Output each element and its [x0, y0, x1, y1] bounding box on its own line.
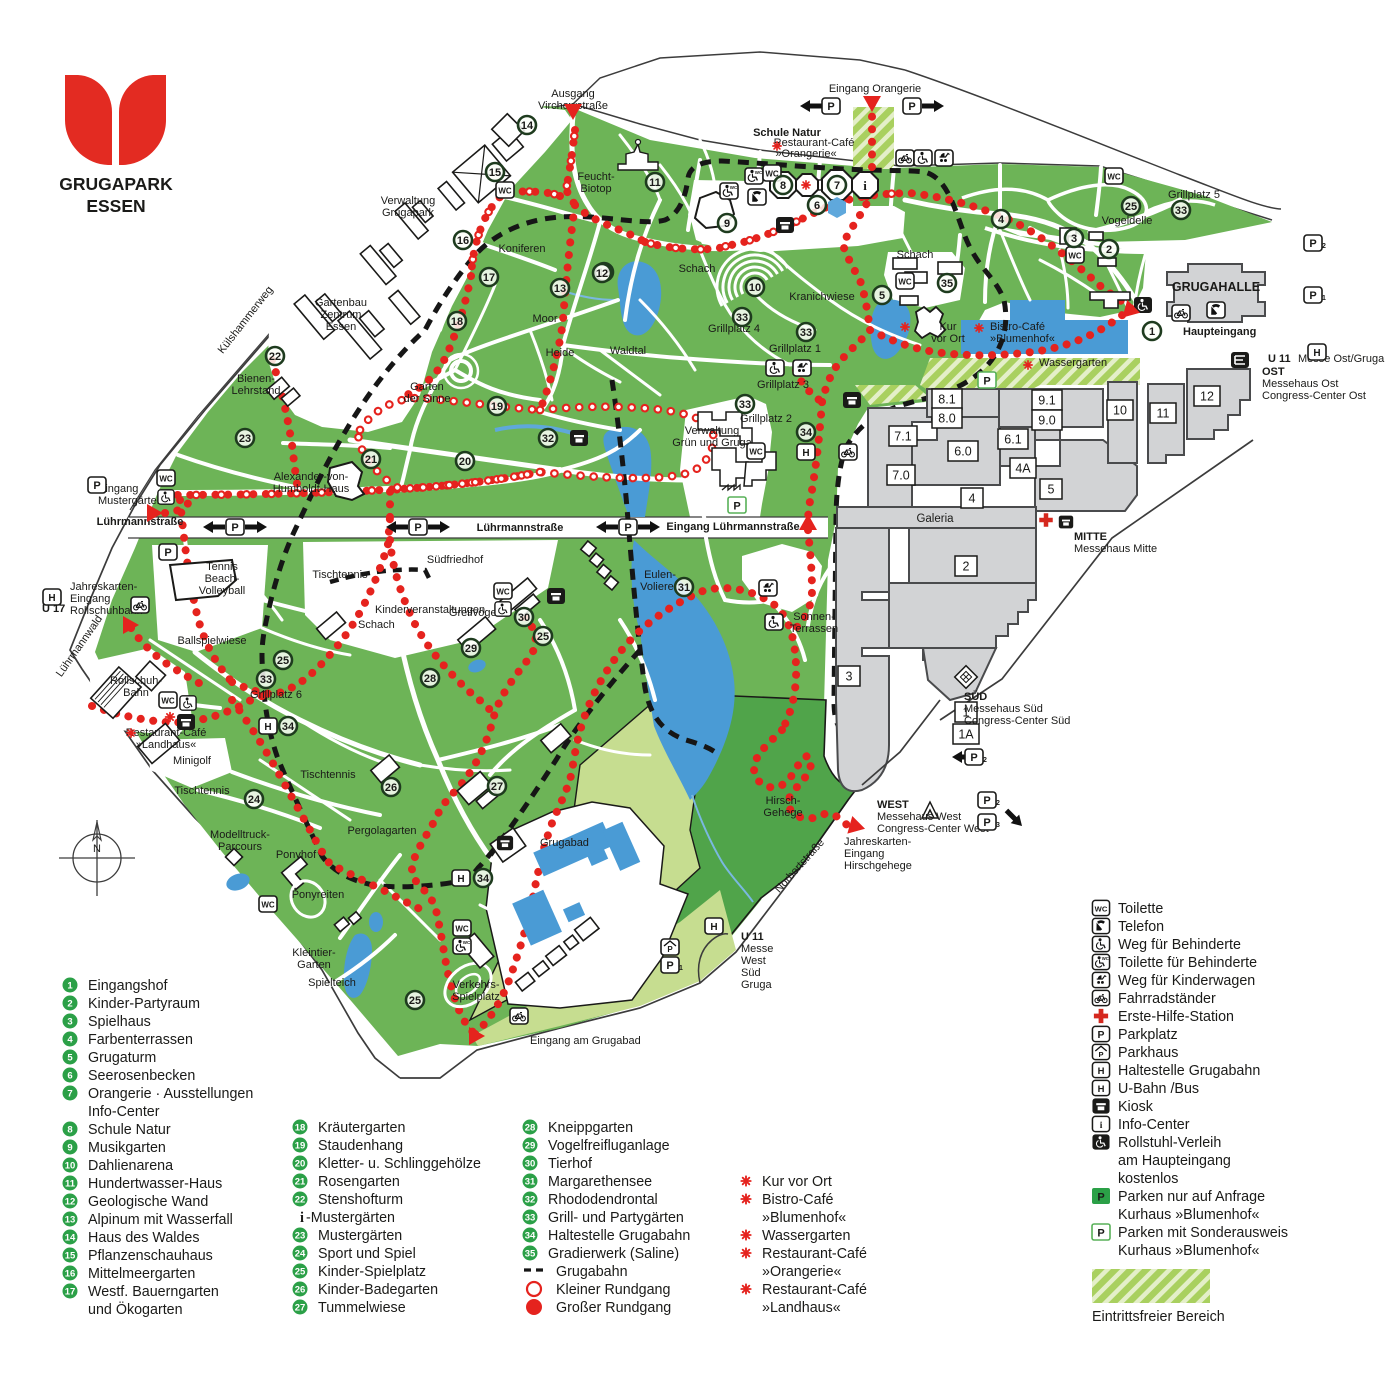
svg-text:Lührmannstraße: Lührmannstraße [97, 516, 184, 528]
svg-text:34: 34 [282, 721, 295, 733]
svg-text:Eingang: Eingang [70, 593, 110, 605]
svg-text:34: 34 [525, 1231, 536, 1242]
svg-text:U-Bahn /Bus: U-Bahn /Bus [1118, 1081, 1199, 1097]
svg-text:35: 35 [941, 278, 953, 290]
svg-text:17: 17 [483, 272, 495, 284]
svg-text:Wassergarten: Wassergarten [1039, 357, 1107, 369]
svg-text:-Mustergärten: -Mustergärten [306, 1210, 395, 1226]
svg-text:8.0: 8.0 [938, 412, 955, 426]
svg-text:Hundertwasser-Haus: Hundertwasser-Haus [88, 1176, 222, 1192]
svg-text:23: 23 [295, 1231, 306, 1242]
svg-text:Bienen-: Bienen- [237, 373, 275, 385]
svg-text:4A: 4A [1015, 462, 1031, 476]
svg-text:Congress-Center Süd: Congress-Center Süd [964, 715, 1070, 727]
svg-text:12: 12 [596, 268, 608, 280]
svg-text:8.1: 8.1 [938, 393, 955, 407]
svg-text:Schach: Schach [679, 263, 716, 275]
svg-text:Mustergärten: Mustergärten [98, 495, 163, 507]
svg-text:Parcours: Parcours [218, 841, 263, 853]
svg-text:MITTE: MITTE [1074, 531, 1107, 543]
svg-text:Toilette für Behinderte: Toilette für Behinderte [1118, 955, 1257, 971]
svg-text:GRUGAPARK: GRUGAPARK [59, 174, 173, 194]
svg-text:11: 11 [1157, 407, 1170, 421]
svg-text:9: 9 [724, 218, 730, 230]
svg-text:2: 2 [963, 560, 970, 574]
svg-text:Zentrum: Zentrum [321, 309, 362, 321]
svg-text:25: 25 [1125, 201, 1137, 213]
svg-text:Beach-: Beach- [205, 573, 240, 585]
svg-text:N: N [93, 843, 101, 855]
svg-text:Eingang: Eingang [844, 848, 884, 860]
svg-text:WEST: WEST [877, 799, 909, 811]
svg-text:6.0: 6.0 [954, 445, 971, 459]
svg-text:25: 25 [409, 995, 421, 1007]
svg-text:Parkhaus: Parkhaus [1118, 1045, 1178, 1061]
svg-text:Weg für Behinderte: Weg für Behinderte [1118, 937, 1241, 953]
svg-text:Seerosenbecken: Seerosenbecken [88, 1068, 195, 1084]
svg-text:Pergolagarten: Pergolagarten [347, 825, 416, 837]
svg-text:11: 11 [649, 177, 661, 189]
svg-text:Kräutergarten: Kräutergarten [318, 1120, 405, 1136]
svg-text:Heide: Heide [546, 347, 575, 359]
svg-text:9.0: 9.0 [1038, 414, 1055, 428]
svg-text:Mittelmeergarten: Mittelmeergarten [88, 1266, 195, 1282]
svg-text:Weg für Kinderwagen: Weg für Kinderwagen [1118, 973, 1255, 989]
svg-text:Toilette: Toilette [1118, 901, 1163, 917]
svg-text:14: 14 [521, 120, 534, 132]
svg-text:Congress-Center West: Congress-Center West [877, 823, 989, 835]
svg-text:Lehrstand: Lehrstand [232, 385, 281, 397]
svg-text:32: 32 [542, 433, 554, 445]
svg-text:Verwaltung: Verwaltung [685, 425, 739, 437]
svg-text:Ponyhof: Ponyhof [276, 849, 317, 861]
svg-text:»Orangerie«: »Orangerie« [762, 1264, 842, 1280]
svg-text:U 11: U 11 [1268, 353, 1291, 365]
svg-text:Messehaus West: Messehaus West [877, 811, 961, 823]
svg-text:Ballspielwiese: Ballspielwiese [177, 635, 246, 647]
svg-text:Congress-Center Ost: Congress-Center Ost [1262, 390, 1366, 402]
svg-text:1A: 1A [958, 728, 974, 742]
svg-text:Kurhaus »Blumenhof«: Kurhaus »Blumenhof« [1118, 1243, 1260, 1259]
svg-text:Parkplatz: Parkplatz [1118, 1027, 1178, 1043]
svg-text:Tummelwiese: Tummelwiese [318, 1300, 406, 1316]
svg-text:Haus des Waldes: Haus des Waldes [88, 1230, 200, 1246]
svg-text:3: 3 [846, 670, 853, 684]
svg-text:Vogelfreifluganlage: Vogelfreifluganlage [548, 1138, 670, 1154]
svg-text:Grillplatz 2: Grillplatz 2 [740, 413, 792, 425]
svg-text:35: 35 [525, 1249, 536, 1260]
svg-text:Messehaus Ost: Messehaus Ost [1262, 378, 1338, 390]
svg-text:Garten: Garten [410, 381, 444, 393]
svg-text:Verkehrs-: Verkehrs- [452, 979, 499, 991]
svg-text:20: 20 [459, 456, 471, 468]
svg-text:23: 23 [239, 433, 251, 445]
svg-text:Grill- und Partygärten: Grill- und Partygärten [548, 1210, 684, 1226]
svg-text:U 11: U 11 [741, 931, 764, 943]
svg-text:Ausgang: Ausgang [551, 88, 594, 100]
svg-text:22: 22 [295, 1195, 306, 1206]
svg-text:Grillplatz 4: Grillplatz 4 [708, 323, 760, 335]
svg-text:Tischtennis: Tischtennis [312, 569, 368, 581]
svg-text:Külshammerweg: Külshammerweg [216, 284, 276, 356]
svg-text:34: 34 [477, 873, 490, 885]
svg-text:33: 33 [260, 674, 272, 686]
svg-text:Rhododendrontal: Rhododendrontal [548, 1192, 658, 1208]
svg-text:i: i [863, 178, 867, 193]
svg-text:Feucht-: Feucht- [577, 171, 615, 183]
svg-text:P: P [1097, 1192, 1104, 1204]
svg-text:»Landhaus«: »Landhaus« [762, 1300, 841, 1316]
svg-text:2: 2 [1322, 243, 1326, 250]
svg-text:27: 27 [491, 781, 503, 793]
svg-text:33: 33 [739, 399, 751, 411]
svg-text:Eintrittsfreier Bereich: Eintrittsfreier Bereich [1092, 1309, 1225, 1325]
svg-text:Musikgarten: Musikgarten [88, 1140, 166, 1156]
svg-text:24: 24 [295, 1249, 306, 1260]
svg-text:Rollschuh-: Rollschuh- [110, 675, 162, 687]
svg-text:Kleiner Rundgang: Kleiner Rundgang [556, 1282, 671, 1298]
svg-text:Spielteich: Spielteich [308, 977, 356, 989]
svg-text:Rollstuhl-Verleih: Rollstuhl-Verleih [1118, 1135, 1221, 1151]
svg-text:Kurhaus »Blumenhof«: Kurhaus »Blumenhof« [1118, 1207, 1260, 1223]
svg-text:9: 9 [67, 1143, 72, 1154]
svg-text:Spielhaus: Spielhaus [88, 1014, 151, 1030]
svg-text:Grün und Gruga: Grün und Gruga [672, 437, 752, 449]
svg-text:Telefon: Telefon [1118, 919, 1164, 935]
svg-text:Pflanzenschauhaus: Pflanzenschauhaus [88, 1248, 213, 1264]
svg-text:19: 19 [491, 401, 503, 413]
svg-text:33: 33 [800, 327, 812, 339]
svg-text:17: 17 [65, 1287, 76, 1298]
svg-text:Verwaltung: Verwaltung [381, 195, 435, 207]
svg-text:Südfriedhof: Südfriedhof [427, 554, 484, 566]
svg-text:Schule Natur: Schule Natur [88, 1122, 171, 1138]
svg-text:der Sinne: der Sinne [403, 393, 450, 405]
svg-text:Grugapark: Grugapark [382, 207, 434, 219]
svg-text:Lührmannstraße: Lührmannstraße [477, 522, 564, 534]
svg-text:Galeria: Galeria [916, 513, 954, 525]
svg-text:Volleyball: Volleyball [199, 585, 245, 597]
svg-text:21: 21 [365, 454, 377, 466]
svg-text:1: 1 [67, 981, 73, 992]
svg-text:Schach: Schach [897, 249, 934, 261]
svg-text:Stenshofturm: Stenshofturm [318, 1192, 403, 1208]
svg-text:Fahrradständer: Fahrradständer [1118, 991, 1216, 1007]
svg-text:Grugaturm: Grugaturm [88, 1050, 156, 1066]
svg-text:kostenlos: kostenlos [1118, 1171, 1178, 1187]
svg-text:Vogeldelle: Vogeldelle [1102, 215, 1153, 227]
svg-text:Bahn: Bahn [123, 687, 149, 699]
svg-text:Eingang Lührmannstraße: Eingang Lührmannstraße [666, 521, 799, 533]
svg-text:12: 12 [1200, 390, 1214, 404]
svg-text:P: P [733, 501, 740, 513]
svg-text:»Orangerie«: »Orangerie« [775, 148, 836, 160]
svg-text:Bistro-Café: Bistro-Café [990, 321, 1045, 333]
svg-text:Haltestelle Grugabahn: Haltestelle Grugabahn [548, 1228, 690, 1244]
svg-text:14: 14 [65, 1233, 76, 1244]
svg-text:vor Ort: vor Ort [931, 333, 965, 345]
svg-text:Biotop: Biotop [580, 183, 611, 195]
svg-text:10: 10 [749, 282, 761, 294]
svg-text:16: 16 [457, 235, 469, 247]
svg-text:Kiosk: Kiosk [1118, 1099, 1154, 1115]
svg-text:Hirschgehege: Hirschgehege [844, 860, 912, 872]
svg-text:Süd: Süd [741, 967, 761, 979]
svg-text:P: P [1097, 1228, 1104, 1240]
svg-text:Gruga: Gruga [741, 979, 772, 991]
svg-text:»Landhaus«: »Landhaus« [136, 739, 197, 751]
svg-text:3: 3 [996, 822, 1000, 829]
svg-text:25: 25 [295, 1267, 306, 1278]
svg-text:4: 4 [67, 1035, 73, 1046]
svg-text:Kneippgarten: Kneippgarten [548, 1120, 633, 1136]
svg-text:15: 15 [65, 1251, 76, 1262]
svg-text:Bistro-Café: Bistro-Café [762, 1192, 834, 1208]
svg-text:Großer Rundgang: Großer Rundgang [556, 1300, 671, 1316]
svg-text:21: 21 [295, 1177, 306, 1188]
svg-text:Info-Center: Info-Center [88, 1104, 160, 1120]
svg-text:Spielplatz: Spielplatz [452, 991, 500, 1003]
svg-text:8: 8 [67, 1125, 72, 1136]
svg-text:13: 13 [554, 283, 566, 295]
svg-text:Jahreskarten-: Jahreskarten- [70, 581, 138, 593]
svg-text:Moor: Moor [532, 313, 557, 325]
svg-text:7: 7 [67, 1089, 72, 1100]
svg-text:Staudenhang: Staudenhang [318, 1138, 403, 1154]
svg-text:Geologische Wand: Geologische Wand [88, 1194, 208, 1210]
svg-text:19: 19 [295, 1141, 306, 1152]
svg-text:34: 34 [800, 427, 813, 439]
svg-text:Koniferen: Koniferen [498, 243, 545, 255]
svg-text:30: 30 [518, 612, 530, 624]
svg-text:Grugabahn: Grugabahn [556, 1264, 628, 1280]
svg-text:6: 6 [814, 200, 820, 212]
svg-text:28: 28 [525, 1123, 536, 1134]
svg-text:Haupteingang: Haupteingang [1183, 326, 1256, 338]
svg-text:i: i [300, 1210, 304, 1226]
svg-text:Eingang am Grugabad: Eingang am Grugabad [530, 1035, 641, 1047]
svg-text:10: 10 [1113, 404, 1127, 418]
svg-text:Minigolf: Minigolf [173, 755, 212, 767]
svg-text:Eulen-: Eulen- [644, 569, 676, 581]
svg-text:Grillplatz 1: Grillplatz 1 [769, 343, 821, 355]
svg-text:Kleintier-: Kleintier- [292, 947, 336, 959]
svg-text:Erste-Hilfe-Station: Erste-Hilfe-Station [1118, 1009, 1234, 1025]
svg-text:Dahlienarena: Dahlienarena [88, 1158, 173, 1174]
svg-text:P: P [983, 376, 990, 388]
svg-text:Kinder-Spielplatz: Kinder-Spielplatz [318, 1264, 426, 1280]
svg-text:SÜD: SÜD [964, 690, 987, 703]
svg-text:2: 2 [983, 757, 987, 764]
svg-text:7: 7 [834, 180, 840, 192]
svg-text:West: West [741, 955, 766, 967]
svg-text:32: 32 [525, 1195, 536, 1206]
svg-text:Grillplatz 6: Grillplatz 6 [250, 689, 302, 701]
svg-text:Tennis: Tennis [206, 561, 238, 573]
svg-text:Gartenbau: Gartenbau [315, 297, 367, 309]
svg-text:5: 5 [67, 1053, 73, 1064]
svg-text:2: 2 [1106, 244, 1112, 256]
svg-text:Kletter- u. Schlinggehölze: Kletter- u. Schlinggehölze [318, 1156, 481, 1172]
svg-text:Orangerie · Ausstellungen: Orangerie · Ausstellungen [88, 1086, 253, 1102]
svg-text:Jahreskarten-: Jahreskarten- [844, 836, 912, 848]
svg-text:28: 28 [424, 673, 436, 685]
svg-text:3: 3 [1071, 233, 1077, 245]
svg-text:Eingangshof: Eingangshof [88, 978, 168, 994]
svg-text:24: 24 [248, 794, 261, 806]
svg-text:10: 10 [65, 1161, 76, 1172]
svg-text:31: 31 [525, 1177, 536, 1188]
svg-text:Hirsch-: Hirsch- [766, 795, 801, 807]
svg-text:Schach: Schach [358, 619, 395, 631]
svg-text:Parken nur auf Anfrage: Parken nur auf Anfrage [1118, 1189, 1265, 1205]
svg-text:7.1: 7.1 [894, 430, 911, 444]
svg-text:Kinder-Badegarten: Kinder-Badegarten [318, 1282, 438, 1298]
svg-text:Sport und Spiel: Sport und Spiel [318, 1246, 416, 1262]
svg-text:18: 18 [295, 1123, 306, 1134]
svg-text:Messehaus Mitte: Messehaus Mitte [1074, 543, 1157, 555]
svg-text:Modelltruck-: Modelltruck- [210, 829, 270, 841]
svg-text:12: 12 [65, 1197, 76, 1208]
svg-text:ESSEN: ESSEN [86, 196, 145, 216]
svg-text:27: 27 [295, 1303, 306, 1314]
svg-text:4: 4 [998, 214, 1005, 226]
svg-text:15: 15 [489, 167, 501, 179]
svg-text:33: 33 [736, 312, 748, 324]
svg-text:Gehege: Gehege [763, 807, 802, 819]
svg-text:25: 25 [277, 655, 289, 667]
svg-text:Tischtennis: Tischtennis [300, 769, 356, 781]
svg-text:16: 16 [65, 1269, 76, 1280]
svg-text:Waldtal: Waldtal [610, 345, 646, 357]
svg-text:Restaurant-Café: Restaurant-Café [762, 1282, 867, 1298]
svg-text:Grillplatz 3: Grillplatz 3 [757, 379, 809, 391]
svg-text:Kur: Kur [939, 321, 956, 333]
svg-text:1: 1 [1322, 295, 1326, 302]
svg-text:Kinder-Partyraum: Kinder-Partyraum [88, 996, 200, 1012]
svg-text:Rosengarten: Rosengarten [318, 1174, 400, 1190]
svg-text:22: 22 [269, 351, 281, 363]
svg-text:25: 25 [537, 631, 549, 643]
svg-text:Alpinum mit Wasserfall: Alpinum mit Wasserfall [88, 1212, 233, 1228]
svg-text:26: 26 [295, 1285, 306, 1296]
svg-text:1: 1 [679, 965, 683, 972]
svg-text:Messe: Messe [741, 943, 773, 955]
svg-text:»Blumenhof«: »Blumenhof« [762, 1210, 846, 1226]
svg-text:33: 33 [1175, 205, 1187, 217]
svg-text:Grugabad: Grugabad [540, 837, 589, 849]
svg-text:Farbenterrassen: Farbenterrassen [88, 1032, 193, 1048]
svg-text:Kranichwiese: Kranichwiese [789, 291, 854, 303]
svg-text:29: 29 [525, 1141, 536, 1152]
svg-text:Haltestelle Grugabahn: Haltestelle Grugabahn [1118, 1063, 1260, 1079]
svg-text:Tierhof: Tierhof [548, 1156, 592, 1172]
svg-text:5: 5 [1048, 483, 1055, 497]
svg-text:Sonnen-: Sonnen- [793, 611, 835, 623]
svg-text:Wassergarten: Wassergarten [762, 1228, 851, 1244]
svg-text:6.1: 6.1 [1004, 433, 1021, 447]
svg-text:2: 2 [996, 800, 1000, 807]
svg-text:5: 5 [879, 290, 885, 302]
svg-text:20: 20 [295, 1159, 306, 1170]
svg-text:»Blumenhof«: »Blumenhof« [990, 333, 1055, 345]
svg-text:18: 18 [451, 316, 463, 328]
svg-text:6: 6 [67, 1071, 72, 1082]
svg-text:Westf. Bauerngarten: Westf. Bauerngarten [88, 1284, 219, 1300]
svg-text:9.1: 9.1 [1038, 394, 1055, 408]
svg-text:1: 1 [1149, 326, 1155, 338]
svg-text:Ponyreiten: Ponyreiten [292, 889, 345, 901]
svg-text:33: 33 [525, 1213, 536, 1224]
svg-text:3: 3 [67, 1017, 72, 1028]
svg-text:2: 2 [67, 999, 72, 1010]
svg-text:Alexander-von-: Alexander-von- [274, 471, 349, 483]
svg-text:Tischtennis: Tischtennis [174, 785, 230, 797]
svg-text:Kur vor Ort: Kur vor Ort [762, 1174, 832, 1190]
svg-text:und Ökogarten: und Ökogarten [88, 1300, 183, 1318]
svg-text:29: 29 [465, 643, 477, 655]
svg-text:Gradierwerk (Saline): Gradierwerk (Saline) [548, 1246, 679, 1262]
svg-text:13: 13 [65, 1215, 76, 1226]
svg-text:Greifvögel: Greifvögel [449, 607, 499, 619]
svg-text:Margarethensee: Margarethensee [548, 1174, 652, 1190]
svg-text:Humboldt-Haus: Humboldt-Haus [273, 483, 350, 495]
svg-text:OST: OST [1262, 366, 1285, 378]
svg-text:GRUGAHALLE: GRUGAHALLE [1172, 280, 1260, 294]
svg-text:Messehaus Süd: Messehaus Süd [964, 703, 1043, 715]
svg-text:26: 26 [385, 782, 397, 794]
svg-text:Garten: Garten [297, 959, 331, 971]
svg-text:30: 30 [525, 1159, 536, 1170]
svg-text:4: 4 [969, 492, 976, 506]
svg-text:Restaurant-Café: Restaurant-Café [762, 1246, 867, 1262]
svg-text:Mustergärten: Mustergärten [318, 1228, 402, 1244]
svg-text:Parken mit Sonderausweis: Parken mit Sonderausweis [1118, 1225, 1288, 1241]
svg-text:11: 11 [65, 1179, 76, 1190]
svg-text:7.0: 7.0 [892, 469, 909, 483]
svg-text:Grillplatz 5: Grillplatz 5 [1168, 189, 1220, 201]
svg-text:Terrassen: Terrassen [790, 623, 838, 635]
svg-text:Essen: Essen [326, 321, 357, 333]
svg-text:8: 8 [780, 180, 786, 192]
svg-text:31: 31 [678, 582, 690, 594]
svg-text:Info-Center: Info-Center [1118, 1117, 1190, 1133]
svg-text:am Haupteingang: am Haupteingang [1118, 1153, 1231, 1169]
svg-text:Eingang Orangerie: Eingang Orangerie [829, 83, 921, 95]
